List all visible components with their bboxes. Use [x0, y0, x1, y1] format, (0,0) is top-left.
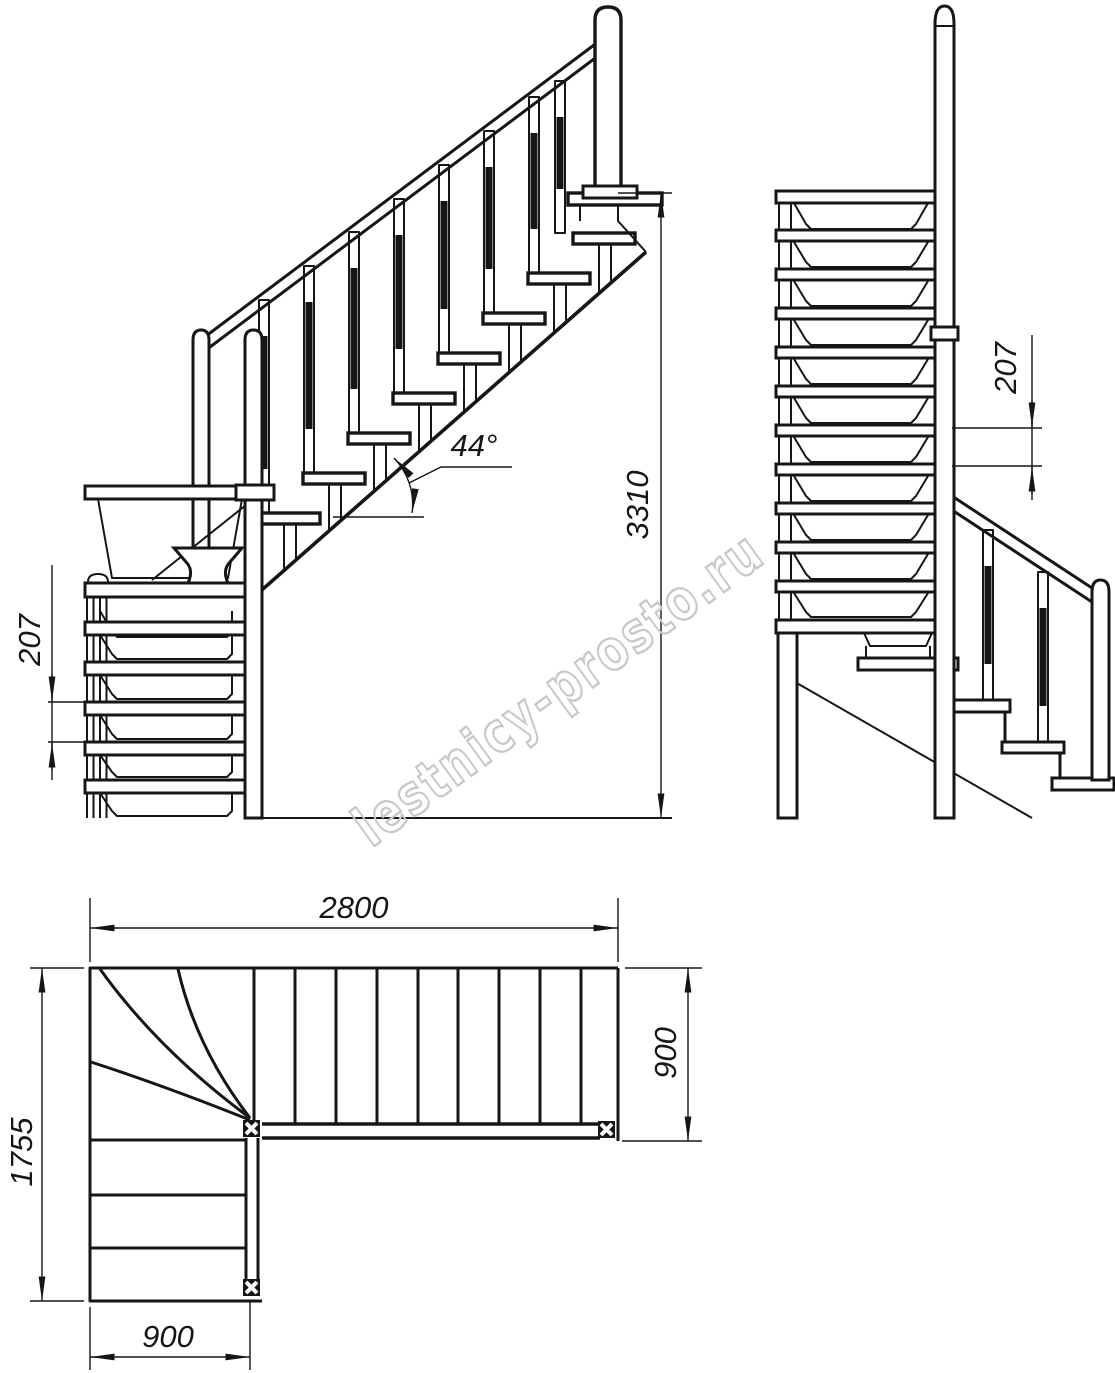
bottom-newel-post [1092, 580, 1109, 780]
side-dimensions: 207 [952, 335, 1042, 500]
top-newel-post [595, 7, 621, 193]
mid-newel-post [245, 330, 262, 818]
plan-end-post-symbol [598, 1121, 615, 1138]
half-tread-tray [864, 633, 932, 658]
plan-view [90, 968, 618, 1301]
plan-dimensions: 2800 900 1755 900 [4, 890, 702, 1370]
plan-bottom-post-symbol [243, 1279, 260, 1296]
side-elevation-view [776, 6, 1114, 818]
rail-end-post [193, 330, 209, 548]
side-rise-dimension-label: 207 [988, 340, 1023, 394]
plan-lower-width-dimension-label: 900 [142, 1319, 194, 1354]
plan-lower-railing [246, 1138, 258, 1281]
plan-upper-railing [262, 1124, 600, 1138]
plan-upper-treads [254, 968, 581, 1124]
plan-corner-post-symbol [243, 1120, 260, 1137]
top-newel-collar [583, 186, 637, 198]
tall-post-collar [931, 327, 958, 340]
mid-newel-collar [236, 485, 274, 500]
tall-newel-post [935, 6, 954, 818]
slope-angle-label: 44° [451, 428, 498, 463]
lower-flight-steps [950, 700, 1114, 790]
front-rise-dimension-label: 207 [12, 612, 47, 666]
blueprint-page: 207 3310 44° [0, 0, 1115, 1373]
technical-drawing-canvas: 207 3310 44° [0, 0, 1115, 1373]
total-height-dimension-label: 3310 [620, 471, 655, 540]
plan-lower-treads [90, 1140, 246, 1248]
plan-flight-width-dimension-label: 900 [648, 1027, 683, 1079]
plan-total-width-dimension-label: 1755 [4, 1117, 39, 1187]
winder-landing-tread [85, 486, 246, 499]
balusters-upper-flight [259, 81, 565, 513]
lower-handrail [952, 496, 1092, 602]
front-leg-post [778, 633, 797, 818]
stack-legs [779, 203, 791, 620]
plan-winder-fan [91, 969, 250, 1120]
plan-length-dimension-label: 2800 [319, 890, 389, 925]
tread-stack [776, 191, 948, 633]
winder-stack [85, 574, 250, 816]
watermark-text: lestnicy-prosto.ru [342, 519, 777, 860]
